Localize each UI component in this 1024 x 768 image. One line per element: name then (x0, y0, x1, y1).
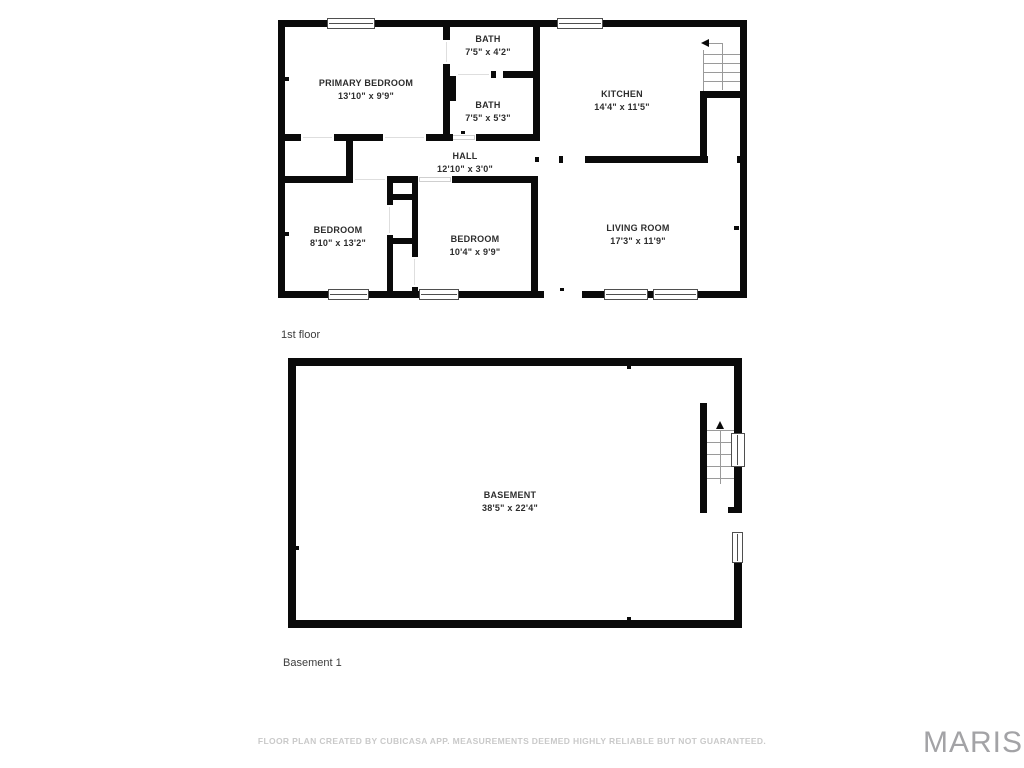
floor-plan-page: PRIMARY BEDROOM 13'10" x 9'9" BATH 7'5" … (0, 0, 1024, 768)
wall (734, 358, 742, 628)
stair-centerline (720, 430, 721, 484)
wall (700, 403, 707, 513)
floor-plan-basement: BASEMENT 38'5" x 22'4" (0, 0, 1024, 768)
wall (288, 620, 742, 628)
room-name: BASEMENT (484, 490, 537, 500)
wall (288, 358, 742, 366)
floor-label-basement: Basement 1 (283, 657, 342, 669)
disclaimer-text: FLOOR PLAN CREATED BY CUBICASA APP. MEAS… (258, 736, 766, 746)
room-dims: 38'5" x 22'4" (482, 502, 538, 515)
door-opening (734, 513, 742, 532)
maris-logo: MARIS (923, 726, 1023, 760)
stair-arrow-icon (716, 421, 724, 429)
room-label: BASEMENT 38'5" x 22'4" (482, 489, 538, 515)
wall-mark (627, 617, 631, 620)
wall-mark (627, 366, 631, 369)
window (732, 532, 743, 563)
wall-mark (296, 546, 299, 550)
window (731, 433, 745, 467)
wall-mark (728, 507, 734, 513)
wall (288, 358, 296, 628)
